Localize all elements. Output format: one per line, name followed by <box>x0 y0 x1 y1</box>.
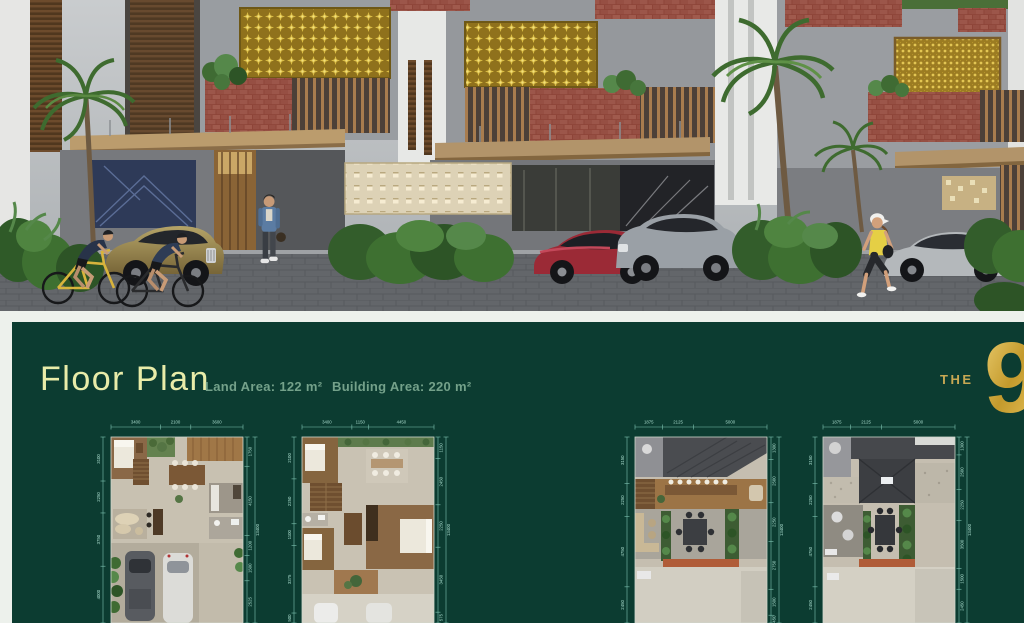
building-area-label: Building Area: 220 m² <box>332 379 471 394</box>
brochure-page: Floor Plan Land Area: 122 m² Building Ar… <box>0 0 1024 623</box>
dim-label: 1300 <box>772 443 777 453</box>
dim-label: 2125 <box>673 420 683 425</box>
dim-label: 2525 <box>248 597 253 607</box>
section-title: Floor Plan <box>40 360 210 399</box>
plan-art <box>107 437 245 623</box>
dim-label: 2250 <box>808 495 813 505</box>
dim-label: 1150 <box>356 420 366 425</box>
dim-label: 1875 <box>644 420 654 425</box>
dim-label: 1750 <box>248 446 253 456</box>
glass-garage-wall <box>512 165 620 231</box>
dim-label: 3100 <box>96 454 101 464</box>
dim-label: 3400 <box>131 420 141 425</box>
dim-label: 1500 <box>960 574 965 584</box>
dim-label: 1150 <box>439 443 444 453</box>
dim-label: 3600 <box>212 420 222 425</box>
perforated-wall <box>345 163 511 214</box>
gold-perf-wall-right <box>942 176 996 210</box>
logo-the-text: THE <box>940 372 974 387</box>
plan-art <box>635 437 767 623</box>
dim-label: 2450 <box>620 600 625 610</box>
land-area-label: Land Area: 122 m² <box>205 379 322 394</box>
dim-label: 2125 <box>861 420 871 425</box>
brick-balcony-2 <box>465 87 715 144</box>
exterior-render <box>0 0 1024 311</box>
dim-label: 2250 <box>287 496 292 506</box>
dim-label: 2500 <box>772 476 777 486</box>
dim-label: 3400 <box>322 420 332 425</box>
dim-label: 2250 <box>96 492 101 502</box>
floor-plan-2: 3400115044502100225011003375500115024502… <box>274 413 452 623</box>
floor-plan-panel: Floor Plan Land Area: 122 m² Building Ar… <box>12 322 1024 623</box>
dim-label: 2250 <box>620 495 625 505</box>
dim-label: 3750 <box>96 534 101 544</box>
dim-label: 3375 <box>287 574 292 584</box>
dim-label: 2250 <box>960 499 965 509</box>
dim-label: 450 <box>772 615 777 623</box>
gold-screen-2 <box>465 22 597 87</box>
dim-label: 2100 <box>287 453 292 463</box>
dim-label: 1500 <box>248 563 253 573</box>
the9-logo: THE 9 <box>940 330 1024 422</box>
floor-plan-4: 1875212550003150225047502450130025002250… <box>795 413 973 623</box>
dim-label: 13400 <box>255 523 260 536</box>
dim-label: 3150 <box>620 455 625 465</box>
dim-label: 2450 <box>439 476 444 486</box>
dim-label: 500 <box>287 614 292 622</box>
entry-door <box>214 150 345 265</box>
dim-label: 1200 <box>248 540 253 550</box>
dim-label: 4150 <box>248 496 253 506</box>
plan-art <box>823 437 955 623</box>
dim-label: 4750 <box>620 546 625 556</box>
floor-plan-1: 3400210036003100225037504000175041501200… <box>83 413 261 623</box>
dim-label: 575 <box>439 613 444 621</box>
floor-plan-3: 1875212550003150225047502450130025002250… <box>607 413 785 623</box>
dim-label: 3450 <box>439 574 444 584</box>
dim-label: 2500 <box>960 467 965 477</box>
logo-numeral: 9 <box>984 322 1024 434</box>
brick-balcony-3 <box>868 90 1024 142</box>
dim-label: 2250 <box>772 517 777 527</box>
dim-label: 1500 <box>772 597 777 607</box>
plan-art <box>302 437 434 623</box>
dim-label: 5000 <box>726 420 736 425</box>
dim-label: 4000 <box>96 589 101 599</box>
dim-label: 13400 <box>779 523 784 536</box>
brick-balcony-1 <box>205 78 390 133</box>
dim-label: 1875 <box>832 420 842 425</box>
marble-feature-wall-blue <box>92 160 196 228</box>
dim-label: 4450 <box>397 420 407 425</box>
dim-label: 2250 <box>439 521 444 531</box>
dim-label: 1100 <box>287 530 292 540</box>
dim-label: 1300 <box>960 441 965 451</box>
dim-label: 13400 <box>446 523 451 536</box>
dim-label: 4750 <box>808 546 813 556</box>
dim-label: 2450 <box>960 601 965 611</box>
dim-label: 3500 <box>960 539 965 549</box>
dim-label: 5000 <box>914 420 924 425</box>
dim-label: 2750 <box>772 560 777 570</box>
dim-label: 2450 <box>808 600 813 610</box>
gold-screen-1 <box>240 8 390 78</box>
dim-label: 13400 <box>967 523 972 536</box>
dim-label: 3150 <box>808 455 813 465</box>
dim-label: 2100 <box>171 420 181 425</box>
